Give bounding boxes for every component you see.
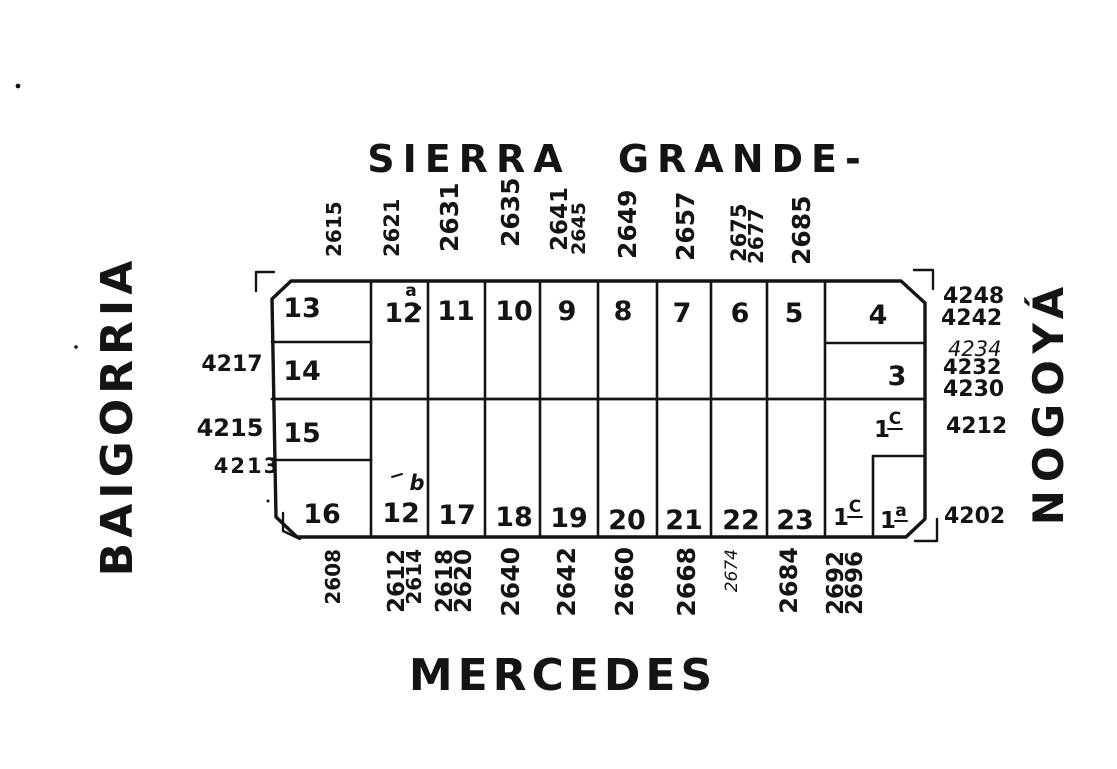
lot-5-label: 5	[785, 298, 804, 329]
lot-3-label: 3	[888, 361, 907, 392]
corner-mark-bottom-right	[915, 519, 937, 541]
right-street-numbers: 4248 4242 4234 4232 4230 4212 4202	[941, 284, 1007, 529]
lot-1c-lower-sup: C	[849, 497, 861, 517]
lot-8-label: 8	[614, 296, 633, 327]
lot-6-label: 6	[731, 298, 750, 329]
lot-12b-tick	[392, 474, 402, 477]
corner-mark-top-right	[914, 270, 933, 289]
street-number: 2684	[775, 547, 803, 614]
lot-22-label: 22	[722, 505, 760, 536]
left-street-numbers: 4217 4215 4213	[197, 352, 281, 478]
lot-labels-top-row: 13 12 a 11 10 9 8 7 6 5 4	[283, 281, 887, 331]
lot-17-label: 17	[438, 500, 476, 531]
lot-14-label: 14	[283, 356, 321, 387]
lot-21-label: 21	[665, 505, 703, 536]
lot-12a-dot	[417, 306, 421, 310]
street-number: 4230	[943, 377, 1004, 402]
street-number: 4213	[214, 454, 280, 478]
lot-1a-label: 1	[880, 508, 896, 534]
lot-16-label: 16	[303, 499, 341, 530]
lot-12b-sup: b	[409, 471, 424, 495]
street-number: 2642	[552, 547, 581, 617]
lot-1c-upper-sup: C	[889, 409, 901, 429]
lot-1c-upper-label: 1	[874, 417, 890, 443]
street-number: 4217	[201, 352, 262, 377]
street-name-top: SIERRA GRANDE-	[367, 137, 869, 181]
lot-23-label: 23	[776, 505, 814, 536]
lot-1c-lower-label: 1	[833, 505, 849, 531]
street-number: 4212	[946, 414, 1007, 439]
lot-10-label: 10	[495, 296, 533, 327]
lot-1a-sup: a	[895, 501, 906, 521]
corner-mark-top-left	[256, 272, 274, 291]
lot-7-label: 7	[673, 298, 692, 329]
bottom-street-numbers: 2608 2612 2614 2618 2620 2640 2642 2660 …	[321, 547, 868, 617]
lot-labels-bottom-row: 16 12 b 17 18 19 20 21 22 23 1 C 1 a	[303, 471, 907, 536]
street-name-right: NOGOYÁ	[1023, 279, 1073, 525]
lot-20-label: 20	[608, 505, 646, 536]
cadastral-block-map: SIERRA GRANDE- MERCEDES BAIGORRIA NOGOYÁ…	[0, 0, 1117, 769]
street-number: 2608	[321, 549, 345, 605]
street-number: 2696	[842, 551, 868, 615]
street-number: 4202	[944, 504, 1005, 529]
street-number: 2635	[496, 177, 525, 247]
street-number: 2645	[568, 202, 590, 255]
street-number: 2621	[380, 199, 404, 257]
street-number: 2657	[671, 191, 700, 261]
top-street-numbers: 2615 2621 2631 2635 2641 2645 2649 2657 …	[322, 177, 816, 265]
map-canvas: SIERRA GRANDE- MERCEDES BAIGORRIA NOGOYÁ…	[0, 0, 1117, 769]
street-number: 2685	[787, 195, 816, 265]
street-name-left: BAIGORRIA	[92, 256, 143, 577]
lot-11-label: 11	[437, 296, 475, 327]
street-number: 2615	[322, 201, 346, 257]
street-number: 2640	[496, 547, 525, 617]
lot-13-label: 13	[283, 293, 321, 324]
lot-12a-label: 12	[384, 298, 422, 329]
lot-12b-label: 12	[382, 498, 420, 529]
street-number: 2668	[672, 547, 701, 617]
corner-marks	[256, 270, 937, 541]
lot-18-label: 18	[495, 502, 533, 533]
street-number: 2614	[402, 549, 426, 605]
street-number: 4232	[943, 355, 1001, 379]
lot-12a-sup: a	[405, 281, 416, 301]
street-number: 2631	[435, 182, 464, 252]
street-number: 4242	[941, 306, 1002, 331]
lot-9-label: 9	[558, 296, 577, 327]
street-number: 2649	[613, 189, 642, 259]
lot-4-label: 4	[869, 300, 888, 331]
lot-19-label: 19	[550, 503, 588, 534]
street-number: 4215	[197, 414, 264, 442]
street-number: 2620	[451, 549, 477, 613]
lot-labels-sides: 14 3 15 1 C	[283, 356, 906, 449]
street-number: 2677	[744, 208, 768, 264]
street-name-bottom: MERCEDES	[409, 650, 717, 701]
street-number: 2660	[610, 547, 639, 617]
street-number: 2674	[722, 549, 742, 592]
lot-15-label: 15	[283, 418, 321, 449]
lot-grid-lines	[272, 281, 925, 537]
